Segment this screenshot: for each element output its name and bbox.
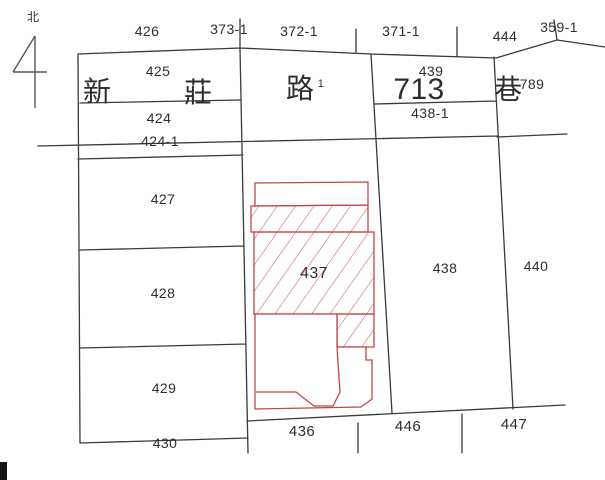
parcel-label-438-1: 438-1 bbox=[411, 105, 449, 121]
parcel-label-372-1: 372-1 bbox=[280, 23, 318, 39]
building-437 bbox=[251, 182, 374, 409]
map-corner-mark bbox=[0, 462, 7, 480]
road-name-char-3: 路 bbox=[286, 73, 314, 104]
parcel-label-447: 447 bbox=[501, 416, 527, 433]
parcel-label-359-1: 359-1 bbox=[540, 19, 578, 35]
parcel-label-440: 440 bbox=[524, 258, 549, 274]
building-top-strip bbox=[255, 182, 368, 206]
parcel-label-444: 444 bbox=[493, 28, 518, 44]
parcel-label-424-1: 424-1 bbox=[141, 133, 179, 149]
parcel-label-371-1: 371-1 bbox=[382, 23, 420, 39]
parcel-label-438: 438 bbox=[433, 260, 458, 276]
parcel-label-424: 424 bbox=[147, 110, 172, 126]
parcel-label-426: 426 bbox=[135, 23, 160, 39]
parcel-label-446: 446 bbox=[395, 418, 421, 435]
north-label: 北 bbox=[27, 10, 39, 24]
road-name-char-1: 新 bbox=[83, 76, 111, 107]
parcel-label-427: 427 bbox=[151, 191, 176, 207]
parcel-label-428: 428 bbox=[151, 285, 176, 301]
parcel-label-373-1: 373-1 bbox=[210, 21, 248, 37]
parcel-label-425: 425 bbox=[146, 63, 171, 79]
cadastral-map: 北 426 373-1 372-1 371-1 444 359-1 425 新 … bbox=[0, 0, 605, 480]
building-hatched-column bbox=[337, 314, 374, 347]
parcel-label-430: 430 bbox=[153, 435, 178, 451]
road-superscript: 1 bbox=[318, 78, 325, 90]
lane-right-number-789: 789 bbox=[520, 76, 545, 92]
lane-number-713: 713 bbox=[393, 73, 444, 106]
parcel-label-429: 429 bbox=[152, 380, 177, 396]
lane-char: 巷 bbox=[494, 74, 522, 105]
cadastral-map-canvas: 北 426 373-1 372-1 371-1 444 359-1 425 新 … bbox=[0, 0, 605, 480]
parcel-label-436: 436 bbox=[289, 423, 315, 440]
road-name-char-2: 莊 bbox=[184, 77, 212, 108]
building-hatched-band bbox=[251, 205, 368, 232]
parcel-label-437: 437 bbox=[300, 265, 328, 282]
north-arrow-icon bbox=[13, 36, 47, 108]
